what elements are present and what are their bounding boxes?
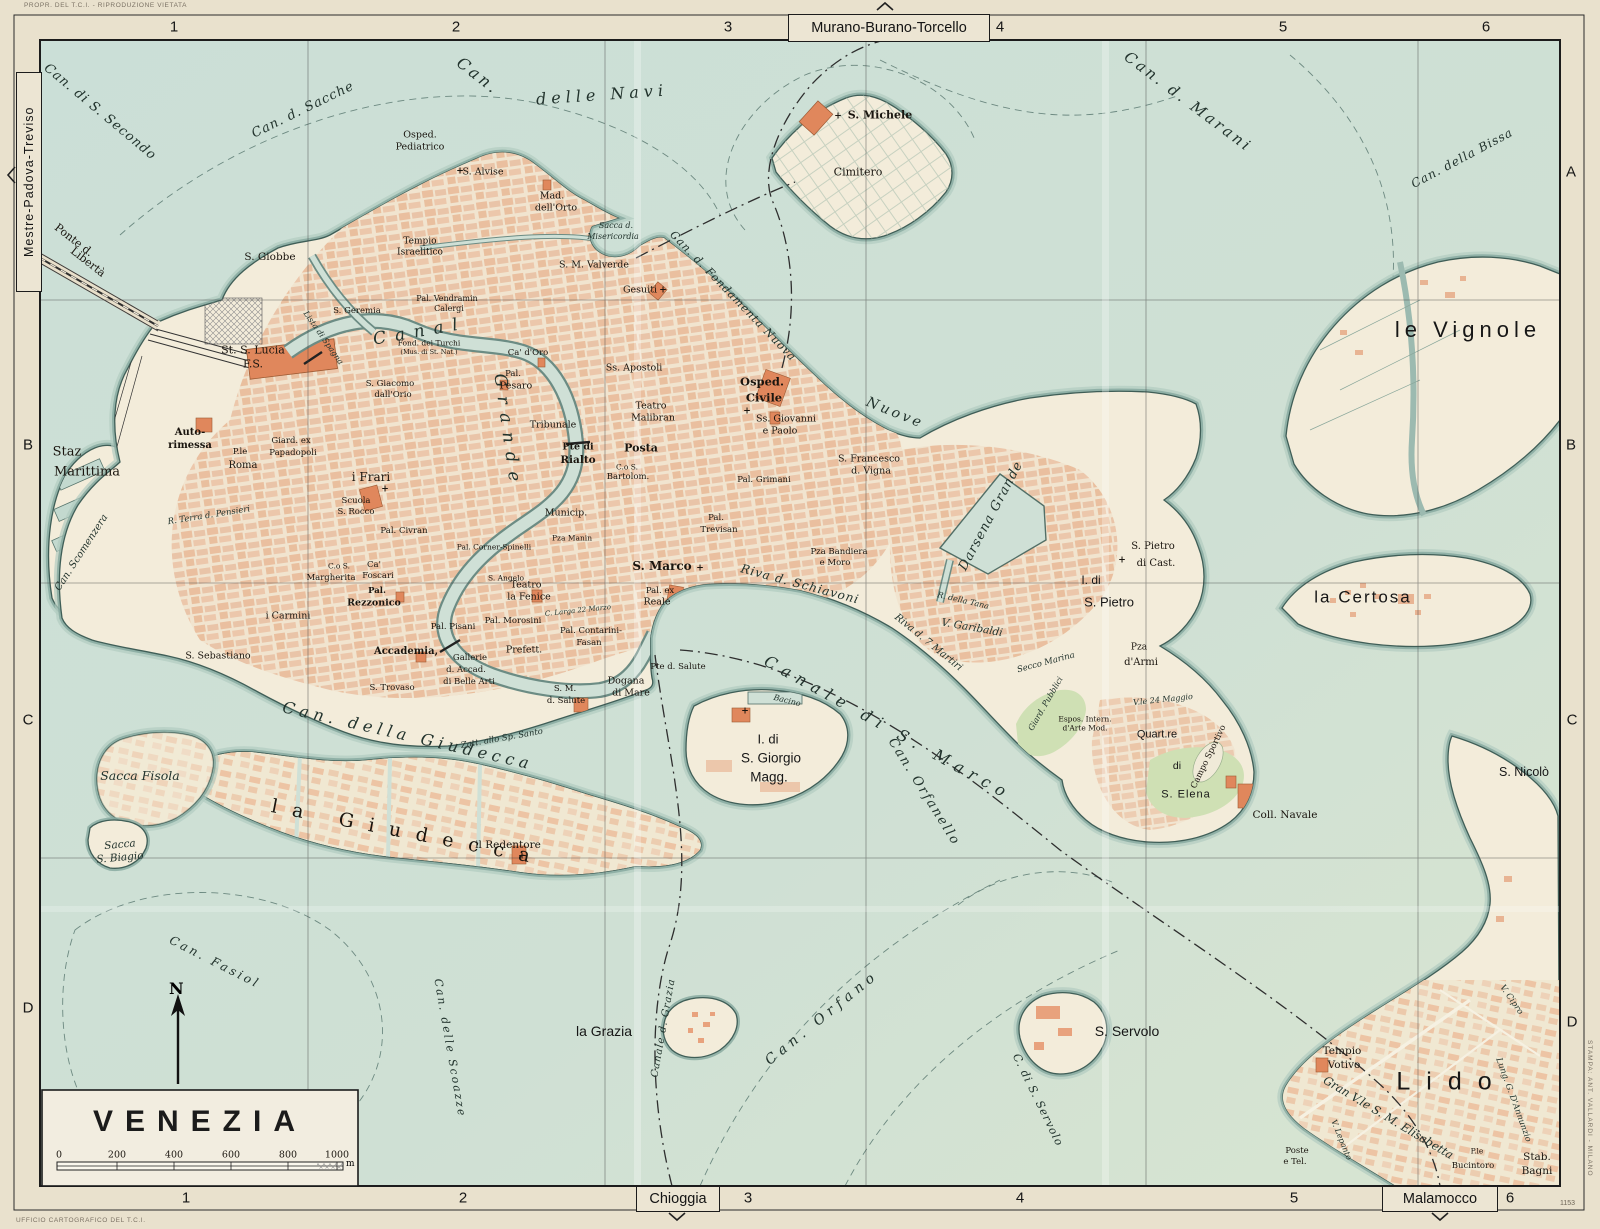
map-label: V. Cipro: [1498, 984, 1524, 1017]
church-cross-icon: +: [456, 168, 464, 177]
church-cross-icon: +: [1118, 557, 1126, 566]
map-label: S. Michele: [848, 110, 912, 121]
map-label: Can. delle Scoazze: [432, 978, 467, 1118]
map-label: Pal.: [505, 370, 521, 379]
map-label: Roma: [229, 461, 258, 471]
grid-col-3b: 3: [744, 1191, 752, 1206]
map-label: Darsena Grande: [957, 459, 1026, 573]
map-label: R. della Tana: [936, 591, 989, 611]
map-label: Pal. Grimani: [737, 476, 790, 485]
map-label: Calergi: [434, 305, 464, 313]
map-label: Sacca d.: [599, 222, 633, 230]
map-label: Can. Fasiol: [168, 934, 263, 990]
map-label: Can. di S. Secondo: [41, 61, 158, 162]
map-label: R. Terra d. Pensieri: [167, 505, 251, 526]
grid-col-5b: 5: [1290, 1191, 1298, 1206]
map-label: Pal. Civran: [380, 527, 427, 536]
map-label: Pza Bandiera: [810, 548, 867, 557]
map-label: di Cast.: [1137, 559, 1176, 569]
map-label: Coll. Navale: [1253, 810, 1318, 821]
map-label: Pal. Pisani: [431, 623, 476, 632]
map-label: Municip.: [545, 508, 587, 518]
map-label: Osped.: [403, 130, 436, 140]
grid-row-C: C: [23, 713, 34, 728]
map-label: S. Francesco: [838, 454, 900, 464]
map-label: 200: [108, 1150, 126, 1160]
map-label: il Redentore: [475, 840, 541, 851]
map-label: le Vignole: [1395, 319, 1541, 341]
map-label: d. Salute: [547, 697, 585, 706]
map-label: dall'Orio: [374, 391, 411, 400]
map-label: Can. Orfano: [763, 968, 881, 1068]
map-label: Ca' d'Oro: [508, 349, 549, 358]
map-label: Auto-: [175, 428, 205, 438]
map-label: Mad.: [540, 191, 565, 201]
map-label: I. di: [758, 733, 779, 746]
map-label: S. Angelo: [488, 574, 524, 582]
grid-col-3: 3: [724, 20, 732, 35]
map-label: Pte di: [562, 442, 593, 452]
church-cross-icon: +: [696, 565, 704, 574]
map-label: P.le: [1471, 1147, 1484, 1155]
map-label: Votivo: [1328, 1060, 1361, 1071]
map-label: C. Larga 22 Marzo: [545, 604, 612, 618]
map-label: S. Rocco: [337, 508, 374, 517]
map-sheet: PROPR. DEL T.C.I. - RIPRODUZIONE VIETATA…: [0, 0, 1600, 1229]
map-label: Marittima: [54, 466, 120, 479]
map-label: Cimitero: [834, 167, 883, 178]
map-label: I. di: [1081, 574, 1100, 586]
map-label: Israelitico: [397, 249, 443, 258]
map-label: Prefett.: [506, 645, 542, 655]
map-label: S. Servolo: [1095, 1024, 1160, 1038]
map-label: (Mus. di St. Nat.): [400, 349, 457, 356]
map-label: Campo Sportivo: [1190, 724, 1228, 790]
map-label: Bucintoro: [1452, 1162, 1494, 1171]
map-label: Gallerie: [453, 654, 487, 663]
map-label: la Fenice: [507, 592, 551, 602]
grid-col-6b: 6: [1506, 1191, 1514, 1206]
map-label: Rialto: [560, 455, 595, 466]
grid-col-2b: 2: [459, 1191, 467, 1206]
map-label: Malibran: [631, 413, 675, 423]
map-label: e Paolo: [763, 426, 798, 436]
grid-col-5: 5: [1279, 20, 1287, 35]
map-label: S. Elena: [1161, 790, 1211, 801]
map-label: 600: [222, 1150, 240, 1160]
map-label: Pal. Contarini-: [560, 627, 622, 636]
map-label: St. S. Lucia: [221, 345, 285, 356]
map-label: Posta: [624, 443, 658, 454]
grid-row-D2: D: [1567, 1015, 1578, 1030]
map-label: Pesaro: [500, 381, 532, 391]
map-label: d. Vigna: [851, 466, 891, 476]
map-label: Pal.: [368, 587, 386, 596]
map-label: 800: [279, 1150, 297, 1160]
map-label: Giard. Pubblici: [1027, 676, 1064, 733]
map-label: F.S.: [243, 359, 263, 370]
grid-row-D: D: [23, 1001, 34, 1016]
map-label: S. Giobbe: [244, 252, 295, 263]
map-label: Quart.re: [1137, 730, 1177, 741]
map-label: Can.: [454, 55, 503, 98]
map-label: Can. Scomenzera: [54, 513, 111, 593]
map-label: Giard. ex: [271, 437, 310, 446]
map-label: la Giudecca: [270, 797, 546, 869]
map-label: 0: [56, 1150, 62, 1160]
map-label: Lido: [1396, 1070, 1507, 1095]
map-label: V. Garibaldi: [941, 617, 1004, 638]
labels-layer: 123456123456BCDABCD02004006008001000Can.…: [0, 0, 1600, 1229]
map-label: Papadopoli: [269, 449, 316, 458]
map-label: V.le 24 Maggio: [1133, 693, 1194, 707]
map-label: Stab.: [1523, 1152, 1551, 1163]
map-label: Sacca Fisola: [100, 770, 180, 783]
map-label: Pal. ex: [646, 587, 674, 596]
grid-col-1b: 1: [182, 1191, 190, 1206]
map-label: Bacino: [773, 694, 802, 708]
map-label: S. Biagio: [96, 851, 144, 866]
church-cross-icon: +: [381, 486, 389, 495]
map-label: Foscari: [362, 572, 394, 581]
map-label: Bartolom.: [607, 473, 650, 482]
church-cross-icon: +: [834, 113, 842, 122]
map-label: Fond. dei Turchi: [398, 339, 461, 347]
grid-col-2: 2: [452, 20, 460, 35]
map-label: Pal. Corner-Spinelli: [457, 543, 531, 551]
map-label: Trevisan: [700, 526, 737, 535]
map-label: Can. d. Fondamenta Nuova: [668, 229, 798, 363]
map-label: S. Sebastiano: [185, 651, 250, 661]
map-label: delle Navi: [536, 82, 669, 107]
map-label: Fasan: [576, 639, 601, 648]
map-label: Misericordia: [587, 233, 639, 241]
church-cross-icon: +: [518, 853, 526, 862]
map-label: la Grazia: [576, 1024, 632, 1038]
map-label: Lista di Spagna: [302, 310, 345, 366]
map-label: S. Nicolò: [1499, 766, 1549, 779]
map-label: Tempio: [403, 238, 436, 247]
map-label: Ss. Apostoli: [606, 363, 663, 373]
map-label: Secco Marina: [1016, 651, 1075, 675]
map-label: S. Alvise: [462, 167, 503, 177]
map-label: dell'Orto: [535, 203, 577, 213]
map-label: Reale: [643, 597, 670, 607]
grid-row-C2: C: [1567, 713, 1578, 728]
map-label: Poste: [1285, 1147, 1308, 1156]
map-label: Tribunale: [530, 420, 577, 430]
map-label: Teatro: [636, 401, 667, 411]
map-label: Osped.: [740, 376, 784, 388]
map-label: Pal. Morosini: [485, 617, 542, 626]
grid-col-4b: 4: [1016, 1191, 1024, 1206]
church-cross-icon: +: [741, 708, 749, 717]
grid-col-4: 4: [996, 20, 1004, 35]
map-label: rimessa: [168, 441, 212, 451]
map-label: C.o S.: [328, 562, 350, 570]
map-label: di: [1173, 761, 1181, 772]
map-label: Dogana: [608, 676, 645, 686]
grid-col-1: 1: [170, 20, 178, 35]
grid-row-A2: A: [1566, 165, 1576, 180]
map-label: i Frari: [352, 471, 390, 483]
map-label: di Belle Arti: [443, 678, 495, 687]
map-label: S. Giorgio: [741, 751, 801, 765]
grid-row-B: B: [23, 438, 33, 453]
map-label: S. Pietro: [1131, 542, 1175, 552]
map-label: Canale di S. Marco: [761, 653, 1014, 803]
map-label: Ss. Giovanni: [756, 414, 816, 424]
grid-row-B2: B: [1566, 438, 1576, 453]
map-label: Riva d. Schiavoni: [739, 562, 860, 605]
map-label: Can. della Bissa: [1409, 126, 1515, 190]
map-label: Scuola: [342, 497, 371, 506]
map-label: Sacca: [104, 838, 136, 851]
map-label: 400: [165, 1150, 183, 1160]
map-label: Gesuiti: [623, 285, 657, 295]
map-label: Bagni: [1522, 1166, 1553, 1177]
map-label: S. Trovaso: [369, 684, 414, 693]
map-label: i Carmini: [266, 611, 311, 621]
map-label: Tempio: [1323, 1046, 1362, 1057]
map-label: Margherita: [306, 574, 355, 583]
map-label: Rezzonico: [347, 598, 401, 608]
map-label: Pza: [1131, 644, 1147, 653]
map-label: Pza Manin: [552, 534, 592, 542]
map-label: S. M.: [554, 685, 576, 694]
map-label: di Mare: [612, 688, 650, 698]
map-label: Canale d. Grazia: [650, 978, 677, 1078]
map-label: S. Pietro: [1084, 596, 1134, 609]
map-label: Pal. Vendramin: [416, 295, 477, 303]
map-label: Can. d. Marani: [1121, 49, 1254, 155]
map-label: 1000: [325, 1150, 349, 1160]
map-label: Ca': [367, 561, 381, 570]
map-label: la Certosa: [1314, 589, 1411, 606]
map-label: e Moro: [820, 559, 851, 568]
map-label: Pal.: [708, 514, 724, 523]
map-label: S. Giacomo: [366, 380, 415, 389]
map-label: Nuove: [864, 395, 926, 431]
map-label: Staz: [53, 446, 82, 459]
map-label: Magg.: [750, 770, 788, 784]
grid-col-6: 6: [1482, 20, 1490, 35]
church-cross-icon: +: [659, 287, 667, 296]
map-label: d. Accad.: [446, 666, 486, 675]
map-label: Lung. G. D'Annunzio: [1494, 1057, 1532, 1143]
church-cross-icon: +: [743, 408, 751, 417]
map-label: Pediatrico: [396, 142, 445, 152]
map-label: d'Armi: [1124, 658, 1158, 668]
map-label: S. M. Valverde: [559, 260, 629, 270]
map-label: P.le: [233, 448, 247, 457]
map-label: e Tel.: [1283, 1158, 1306, 1167]
map-label: S. Geremia: [333, 307, 381, 316]
map-label: Can. d. Sacche: [250, 80, 357, 141]
map-label: Espos. Intern.: [1058, 715, 1111, 723]
map-label: Accademia,: [374, 647, 438, 657]
map-label: Civile: [746, 392, 782, 404]
map-label: V. Lepanto: [1329, 1119, 1352, 1161]
map-label: d'Arte Mod.: [1062, 724, 1107, 732]
map-label: Pte d. Salute: [650, 663, 705, 672]
map-label: S. Marco: [632, 560, 691, 572]
map-label: C.o S.: [616, 463, 638, 471]
map-label: C. di S. Servolo: [1011, 1052, 1065, 1148]
